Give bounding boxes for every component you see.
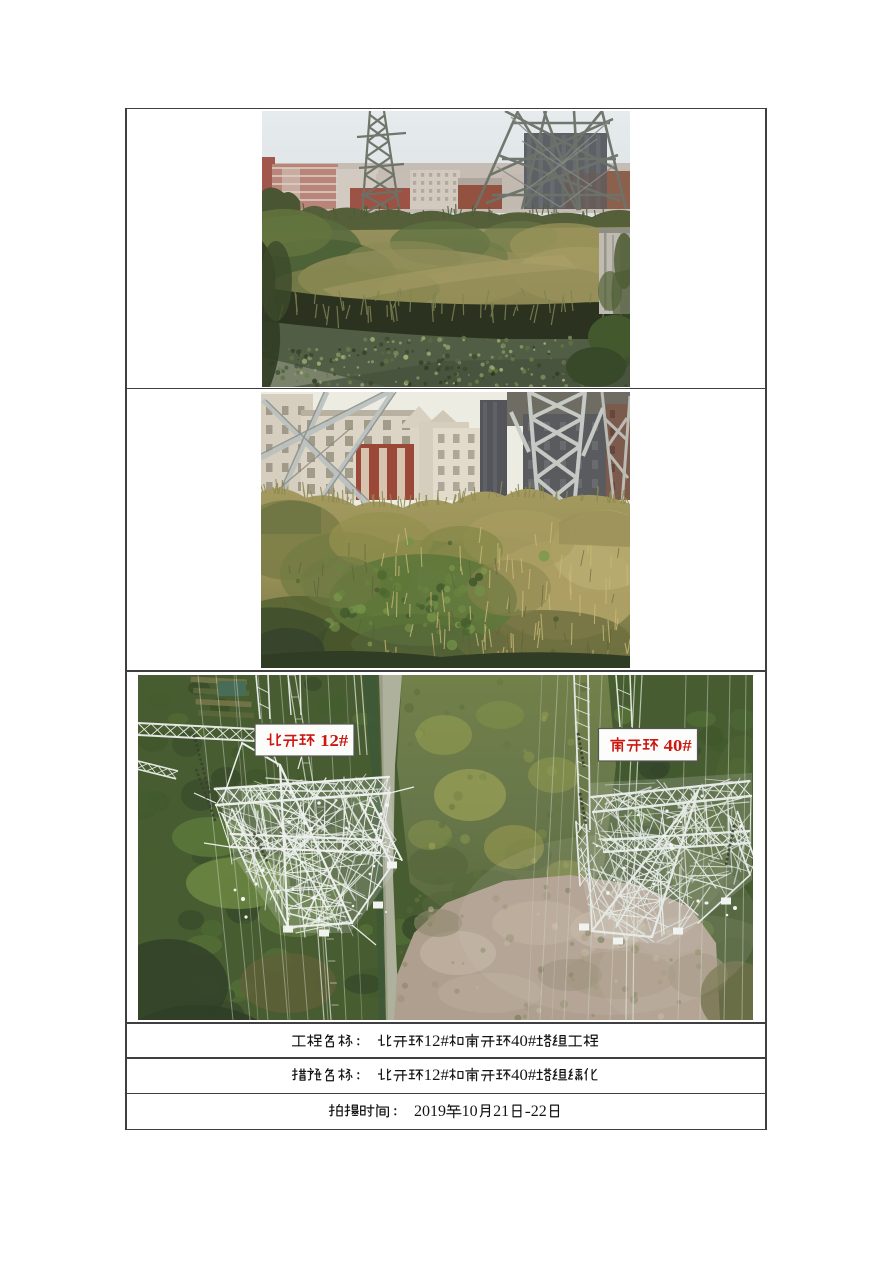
svg-text:22: 22 <box>531 1103 547 1120</box>
svg-text:12#: 12# <box>424 1067 449 1084</box>
svg-text:2019: 2019 <box>414 1103 446 1120</box>
svg-text:12#: 12# <box>320 731 349 750</box>
svg-text:12#: 12# <box>424 1033 449 1050</box>
svg-text:40#: 40# <box>664 736 693 755</box>
svg-text:10: 10 <box>461 1103 477 1120</box>
svg-text:21: 21 <box>493 1103 509 1120</box>
svg-text:40#: 40# <box>511 1033 536 1050</box>
svg-text:40#: 40# <box>511 1067 536 1084</box>
